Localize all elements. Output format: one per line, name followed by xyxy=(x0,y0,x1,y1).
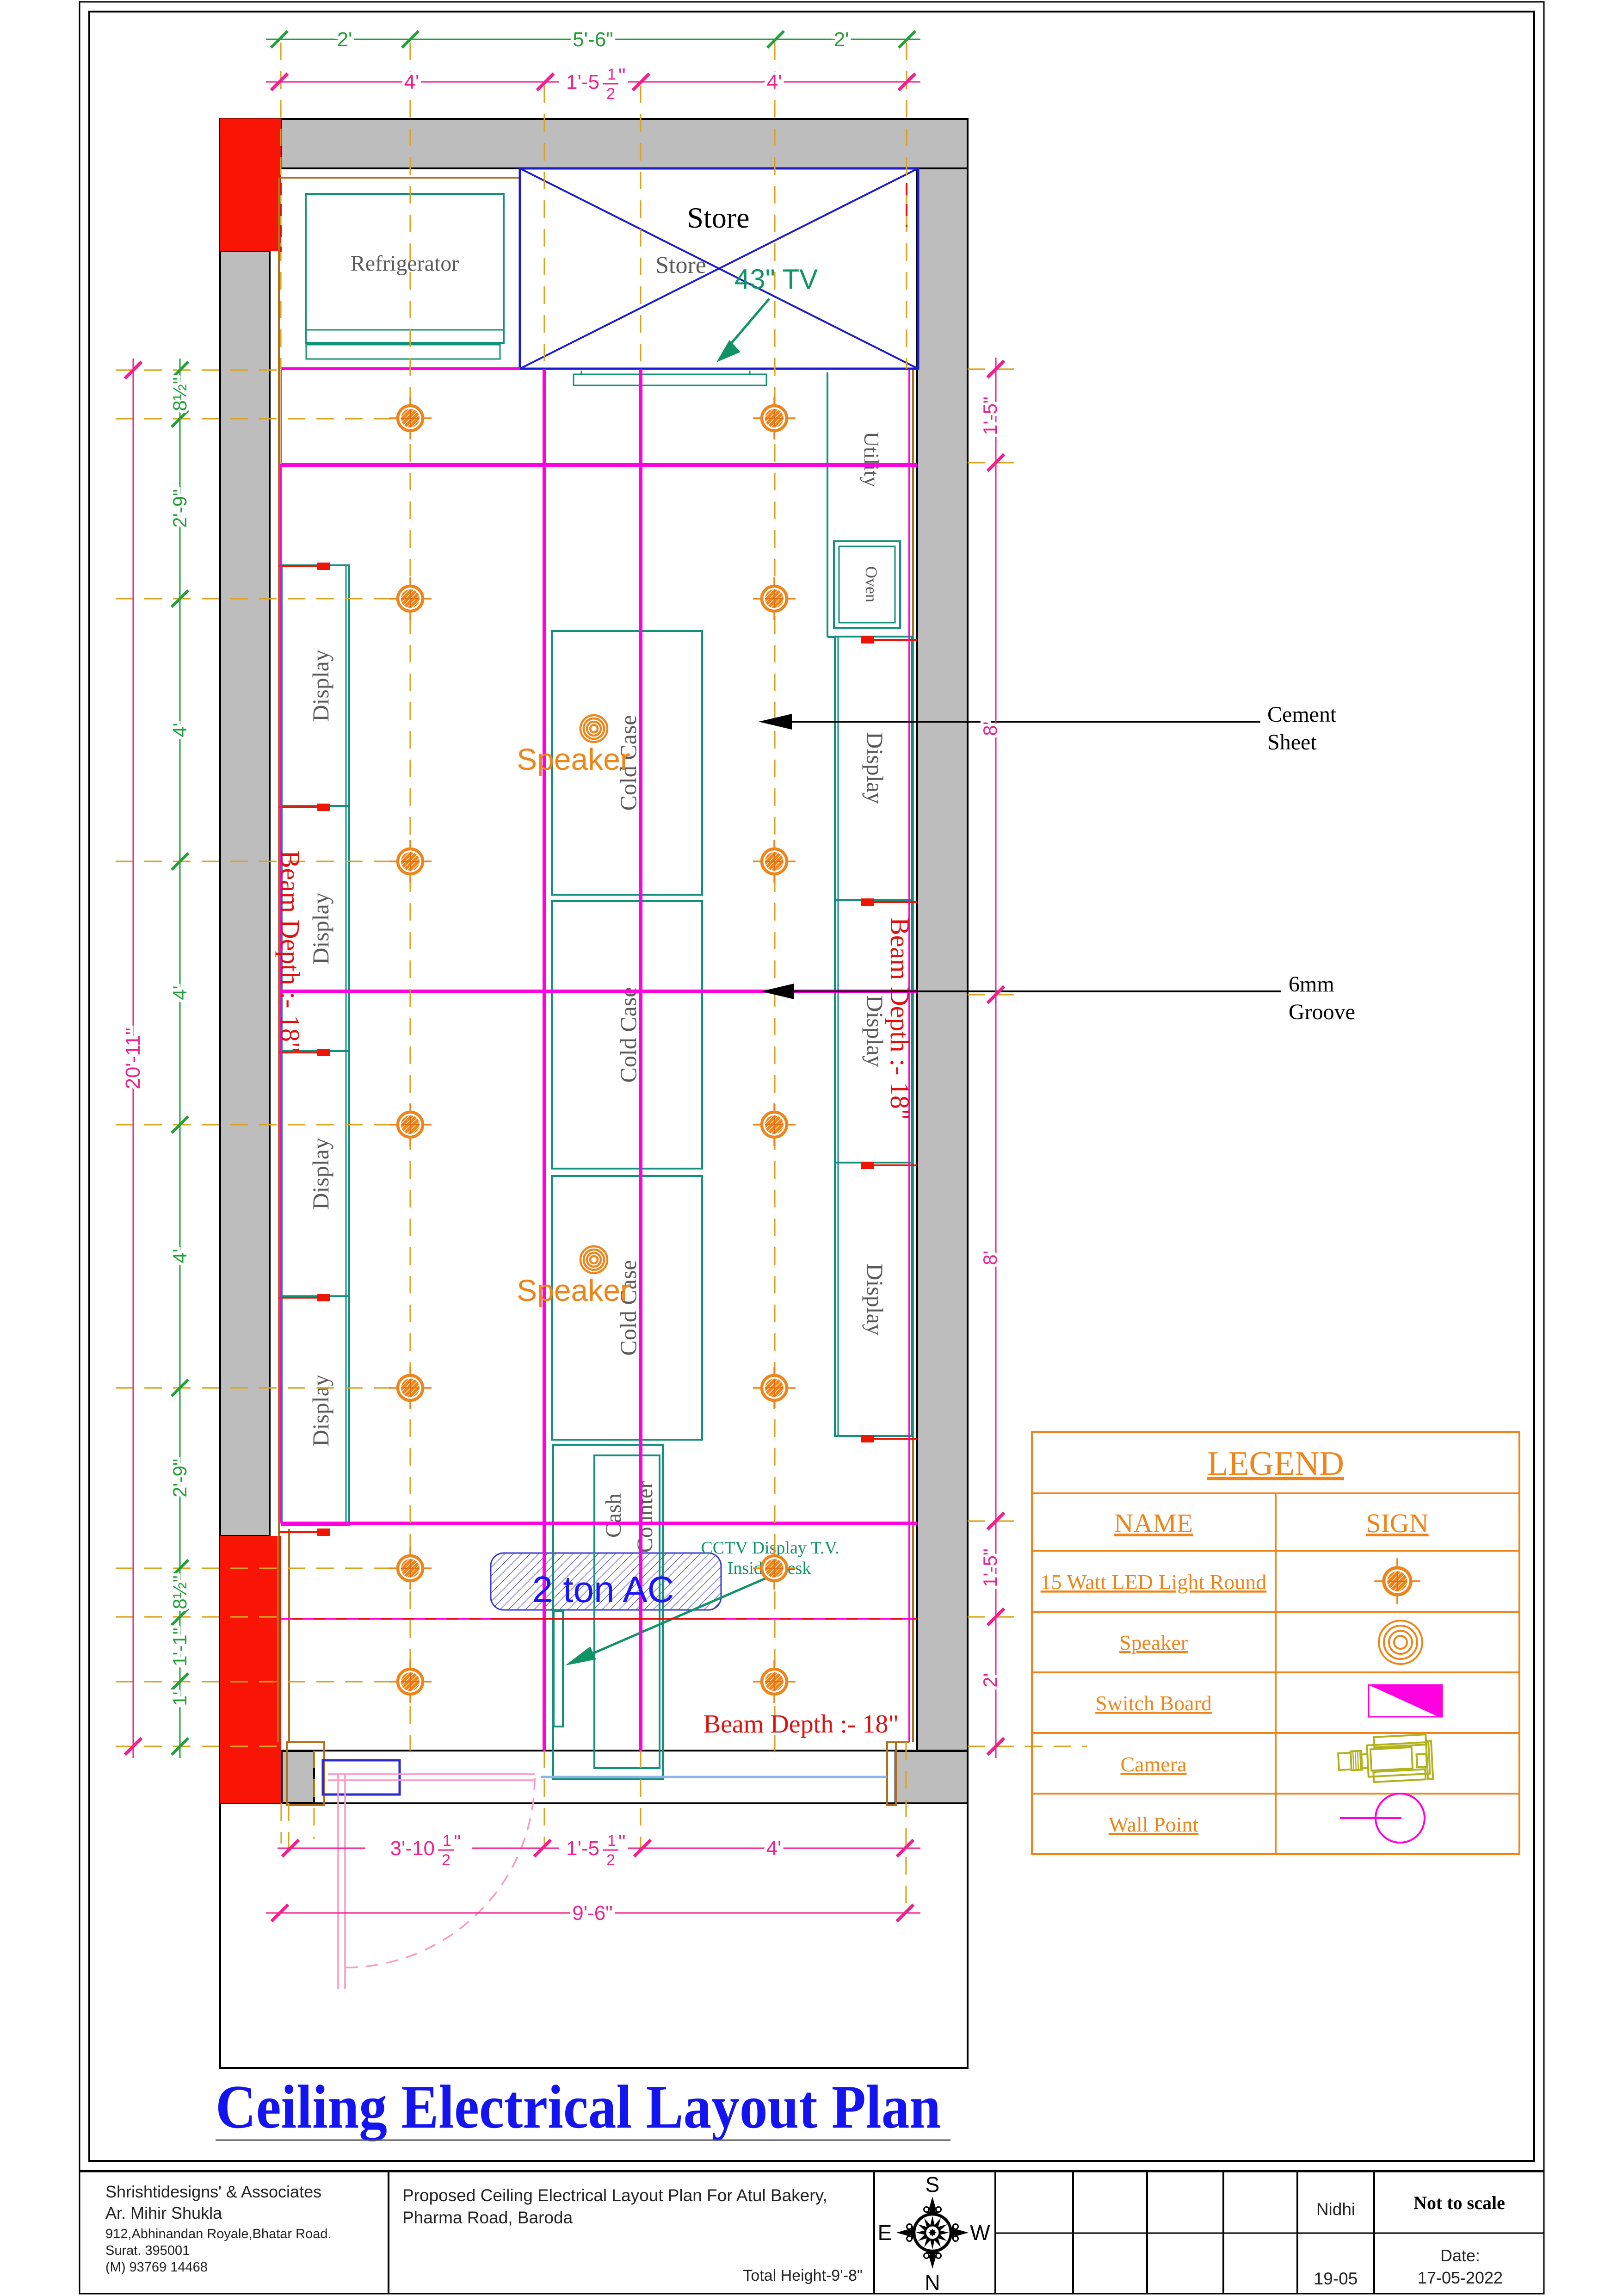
svg-text:Cold Case: Cold Case xyxy=(615,987,641,1083)
svg-text:1'-1": 1'-1" xyxy=(169,1628,191,1666)
svg-text:Sheet: Sheet xyxy=(1267,730,1317,755)
svg-text:1: 1 xyxy=(443,1832,451,1850)
svg-text:1'-5: 1'-5 xyxy=(566,71,599,93)
svg-text:19-05: 19-05 xyxy=(1314,2269,1358,2288)
svg-text:2': 2' xyxy=(979,1673,1001,1687)
svg-text:": " xyxy=(618,1831,626,1853)
svg-text:LEGEND: LEGEND xyxy=(1207,1445,1344,1483)
svg-text:4': 4' xyxy=(767,71,782,93)
svg-text:Speaker: Speaker xyxy=(1119,1631,1188,1654)
svg-text:4': 4' xyxy=(404,71,420,93)
svg-text:(M) 93769 14468: (M) 93769 14468 xyxy=(105,2260,208,2275)
svg-text:Speaker: Speaker xyxy=(517,1273,630,1307)
svg-text:1'-5": 1'-5" xyxy=(979,396,1001,435)
svg-text:Store: Store xyxy=(655,252,706,278)
svg-text:": " xyxy=(454,1831,461,1853)
svg-text:Date:: Date: xyxy=(1440,2246,1480,2265)
svg-text:2': 2' xyxy=(337,28,352,51)
svg-text:2: 2 xyxy=(606,1851,615,1869)
svg-text:Ar. Mihir Shukla: Ar. Mihir Shukla xyxy=(105,2203,222,2222)
svg-text:5'-6": 5'-6" xyxy=(573,28,613,51)
svg-text:8': 8' xyxy=(979,721,1001,736)
svg-text:Not to scale: Not to scale xyxy=(1413,2192,1505,2213)
svg-text:8½": 8½" xyxy=(169,377,191,411)
svg-text:Oven: Oven xyxy=(862,566,881,602)
svg-text:8½": 8½" xyxy=(169,1575,191,1609)
svg-text:SIGN: SIGN xyxy=(1366,1508,1428,1538)
svg-text:CCTV Display T.V.: CCTV Display T.V. xyxy=(701,1538,839,1558)
svg-text:4': 4' xyxy=(766,1837,782,1860)
svg-text:2: 2 xyxy=(606,85,615,103)
svg-text:Speaker: Speaker xyxy=(517,742,630,776)
svg-text:W: W xyxy=(970,2221,990,2245)
svg-text:Switch Board: Switch Board xyxy=(1095,1691,1212,1715)
svg-text:Beam Depth :- 18": Beam Depth :- 18" xyxy=(275,850,305,1053)
svg-text:Display: Display xyxy=(862,995,888,1067)
svg-text:Nidhi: Nidhi xyxy=(1316,2200,1355,2219)
svg-text:Display: Display xyxy=(308,1138,333,1210)
svg-text:Pharma Road, Baroda: Pharma Road, Baroda xyxy=(402,2208,573,2227)
svg-text:Store: Store xyxy=(687,201,749,234)
svg-text:1'-5": 1'-5" xyxy=(979,1548,1001,1587)
svg-text:Display: Display xyxy=(308,650,333,722)
svg-text:Surat. 395001: Surat. 395001 xyxy=(105,2243,190,2258)
svg-text:4': 4' xyxy=(169,985,191,1000)
svg-text:Shrishtidesigns' & Associates: Shrishtidesigns' & Associates xyxy=(105,2182,321,2201)
svg-text:17-05-2022: 17-05-2022 xyxy=(1418,2268,1503,2287)
svg-text:Display: Display xyxy=(308,892,333,965)
svg-text:": " xyxy=(618,64,626,87)
svg-text:Counter: Counter xyxy=(633,1481,657,1553)
svg-text:Ceiling Electrical Layout Plan: Ceiling Electrical Layout Plan xyxy=(216,2073,941,2141)
svg-text:Cash: Cash xyxy=(601,1493,626,1538)
svg-text:Refrigerator: Refrigerator xyxy=(351,251,459,276)
svg-text:Display: Display xyxy=(862,732,888,804)
svg-text:2: 2 xyxy=(442,1851,450,1869)
svg-text:1: 1 xyxy=(607,66,616,83)
svg-text:Beam Depth :- 18": Beam Depth :- 18" xyxy=(885,917,915,1120)
svg-text:912,Abhinandan Royale,Bhatar R: 912,Abhinandan Royale,Bhatar Road. xyxy=(105,2227,332,2241)
svg-text:NAME: NAME xyxy=(1114,1508,1193,1538)
svg-text:9'-6": 9'-6" xyxy=(572,1902,613,1925)
svg-text:2 ton AC: 2 ton AC xyxy=(532,1569,674,1610)
svg-text:Camera: Camera xyxy=(1120,1752,1186,1776)
svg-text:N: N xyxy=(925,2271,940,2295)
svg-text:S: S xyxy=(926,2172,940,2197)
svg-text:Total Height-9'-8": Total Height-9'-8" xyxy=(743,2267,863,2284)
svg-text:2'-9": 2'-9" xyxy=(169,1459,191,1498)
svg-text:Display: Display xyxy=(308,1374,333,1447)
svg-text:E: E xyxy=(878,2221,892,2245)
svg-text:15 Watt LED Light Round: 15 Watt LED Light Round xyxy=(1041,1570,1267,1594)
svg-text:4': 4' xyxy=(169,1249,191,1263)
svg-text:Cement: Cement xyxy=(1267,702,1337,727)
svg-text:43" TV: 43" TV xyxy=(734,264,818,295)
svg-text:6mm: 6mm xyxy=(1289,972,1334,996)
svg-text:3'-10: 3'-10 xyxy=(390,1837,435,1860)
svg-text:8': 8' xyxy=(979,1250,1001,1265)
svg-text:2': 2' xyxy=(834,28,849,51)
svg-text:4': 4' xyxy=(169,723,191,737)
svg-text:20'-11": 20'-11" xyxy=(122,1027,144,1089)
svg-text:1: 1 xyxy=(607,1832,616,1850)
svg-text:Groove: Groove xyxy=(1289,1000,1355,1024)
svg-text:Beam Depth :- 18": Beam Depth :- 18" xyxy=(704,1710,899,1739)
svg-text:1': 1' xyxy=(169,1691,191,1706)
svg-text:2'-9": 2'-9" xyxy=(169,489,191,528)
svg-text:Display: Display xyxy=(862,1263,888,1336)
svg-text:Proposed Ceiling Electrical La: Proposed Ceiling Electrical Layout Plan … xyxy=(402,2186,827,2205)
svg-text:Wall Point: Wall Point xyxy=(1109,1813,1199,1836)
svg-text:Utility: Utility xyxy=(860,432,883,487)
svg-text:1'-5: 1'-5 xyxy=(566,1837,599,1860)
